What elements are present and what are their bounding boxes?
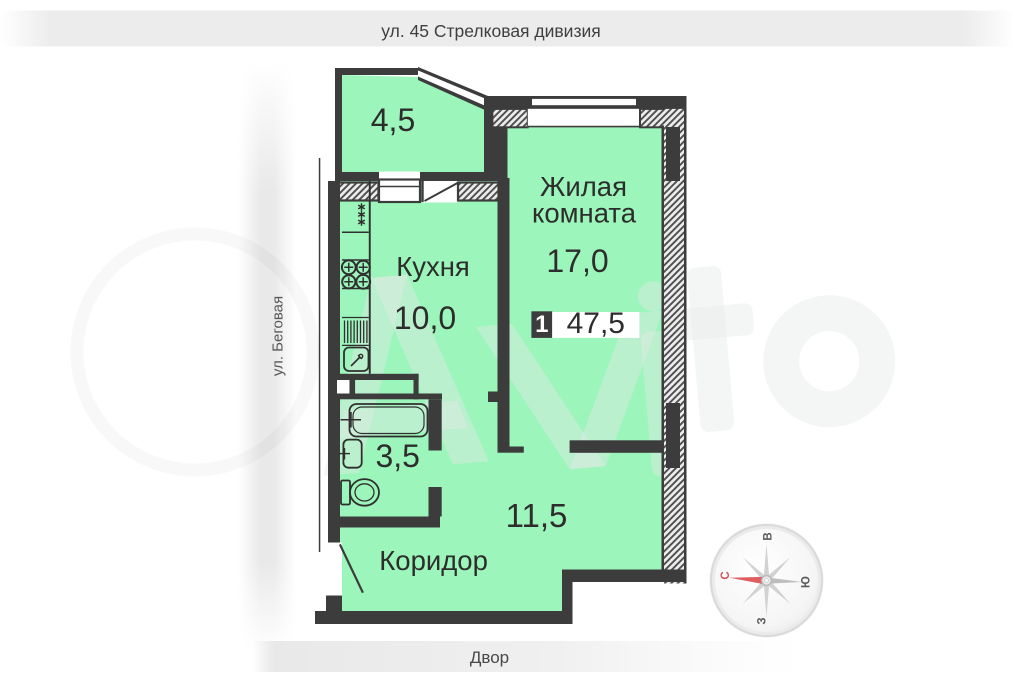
svg-text:11,5: 11,5: [506, 497, 568, 534]
svg-text:Кухня: Кухня: [396, 251, 470, 282]
svg-text:З: З: [757, 617, 769, 624]
svg-text:17,0: 17,0: [546, 243, 608, 279]
svg-text:4,5: 4,5: [371, 102, 415, 138]
svg-text:В: В: [762, 532, 774, 540]
svg-text:1: 1: [535, 311, 548, 338]
svg-text:Коридор: Коридор: [379, 545, 488, 576]
svg-text:Двор: Двор: [470, 648, 509, 667]
svg-text:Ю: Ю: [801, 576, 813, 588]
svg-text:ул. 45 Стрелковая дивизия: ул. 45 Стрелковая дивизия: [381, 21, 600, 41]
svg-text:10,0: 10,0: [394, 300, 456, 336]
svg-text:3,5: 3,5: [375, 438, 419, 474]
svg-text:комната: комната: [532, 198, 637, 229]
svg-text:С: С: [720, 571, 732, 579]
svg-text:47,5: 47,5: [567, 307, 625, 340]
svg-text:ул. Беговая: ул. Беговая: [270, 296, 287, 376]
